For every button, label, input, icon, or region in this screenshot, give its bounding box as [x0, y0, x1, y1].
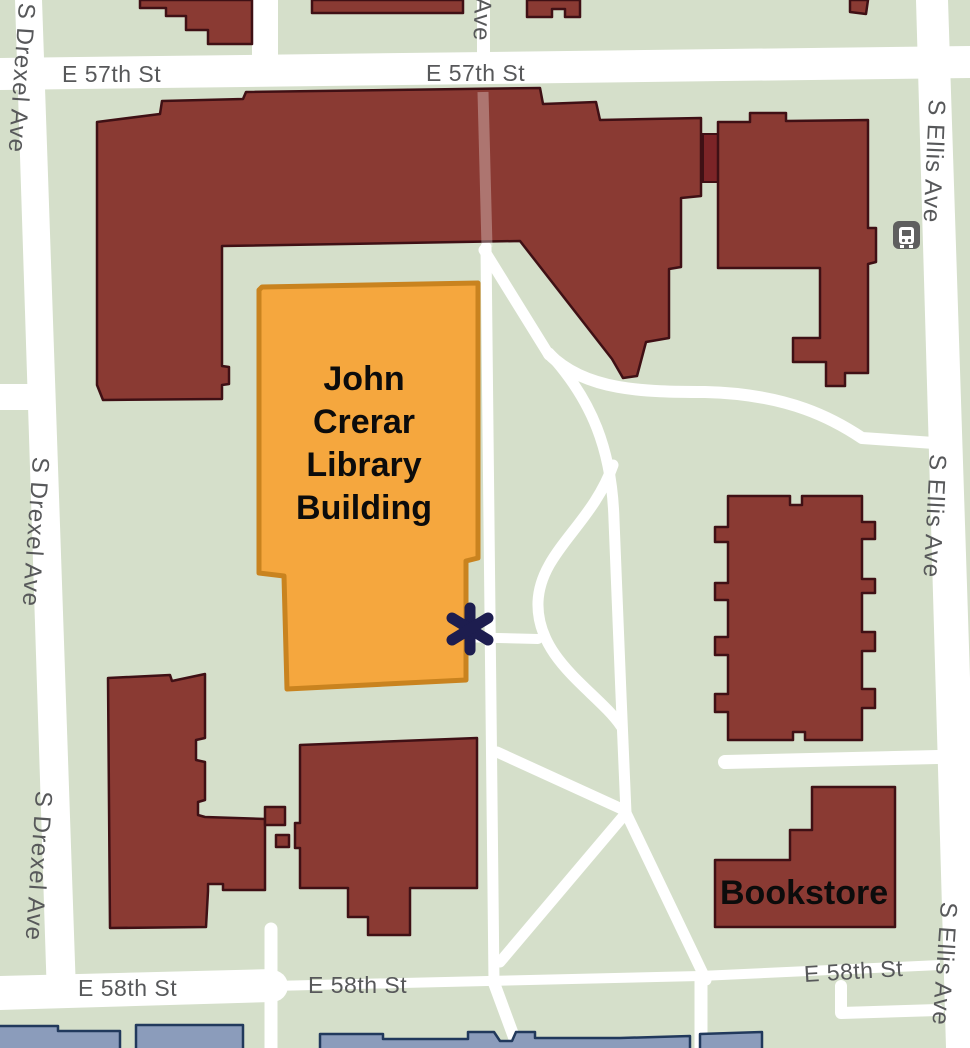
bus-stop-icon[interactable] — [893, 221, 920, 249]
building-sliver-dark — [703, 134, 718, 182]
crerar-label-line3: Library — [258, 444, 470, 487]
building-small-square2 — [276, 835, 289, 847]
crerar-label-line2: Crerar — [258, 401, 470, 444]
walkway-bookstore-north — [725, 757, 938, 762]
road-north-stub — [252, 0, 278, 60]
building-fragment-ne — [850, 0, 868, 14]
blue-building-4 — [700, 1032, 762, 1048]
blue-building-2 — [136, 1025, 243, 1048]
walkway-faint-overlay — [483, 92, 487, 247]
building-comb-east — [715, 496, 875, 740]
building-small-square1 — [265, 807, 285, 825]
crerar-label-line1: John — [258, 358, 470, 401]
street-label-e58th-2: E 58th St — [308, 972, 407, 999]
crerar-building-label: John Crerar Library Building — [258, 358, 470, 530]
building-fragment-n1 — [312, 0, 463, 13]
street-label-ellis-1: S Ellis Ave — [917, 99, 950, 224]
street-label-e57th-2: E 57th St — [426, 60, 525, 87]
street-label-e57th-1: E 57th St — [62, 61, 161, 88]
crerar-label-line4: Building — [258, 487, 470, 530]
map-screenshot: { "map": { "colors": { "background": "#d… — [0, 0, 970, 1048]
street-label-ave-partial: Ave — [466, 0, 496, 42]
street-label-e58th-1: E 58th St — [78, 975, 177, 1002]
bookstore-label: Bookstore — [720, 874, 888, 913]
